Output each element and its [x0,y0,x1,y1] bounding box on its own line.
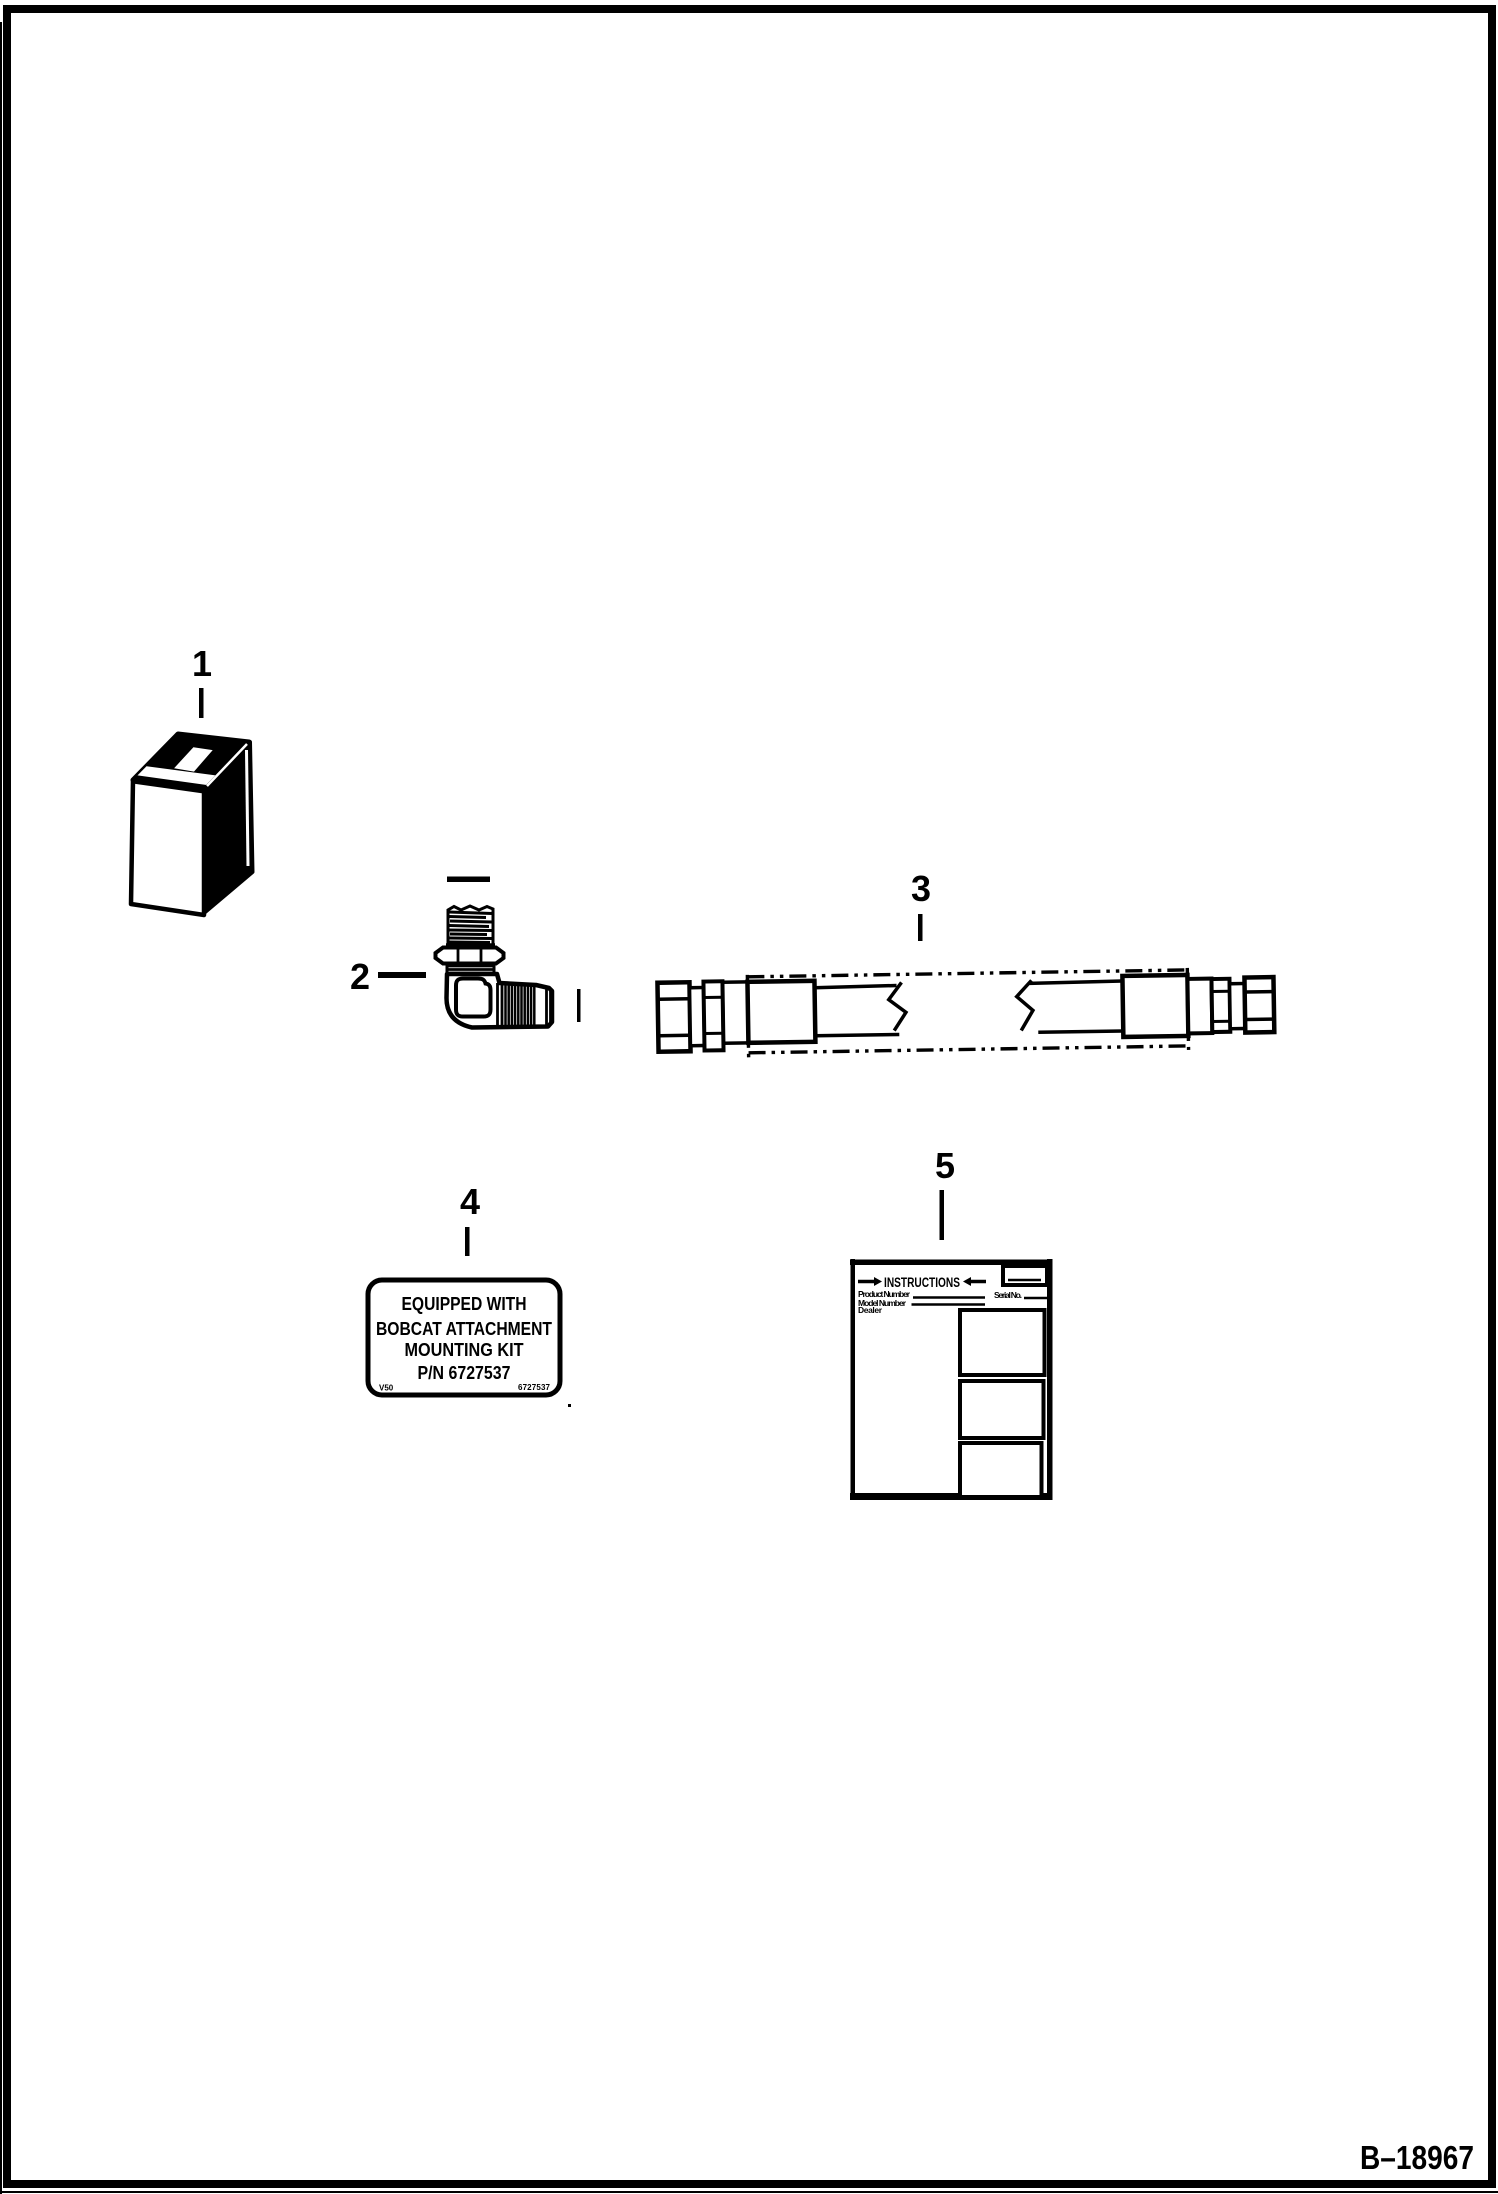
svg-text:Serial No.: Serial No. [994,1290,1022,1300]
svg-text:EQUIPPED WITH: EQUIPPED WITH [402,1294,527,1314]
svg-text:1: 1 [192,643,212,684]
svg-text:5: 5 [935,1145,955,1186]
svg-text:B–18967: B–18967 [1360,2139,1474,2176]
svg-text:BOBCAT ATTACHMENT: BOBCAT ATTACHMENT [376,1319,552,1339]
svg-text:2: 2 [350,956,370,997]
svg-text:MOUNTING KIT: MOUNTING KIT [405,1340,524,1360]
svg-text:6727537: 6727537 [518,1383,551,1392]
svg-text:Dealer: Dealer [858,1305,883,1315]
svg-text:4: 4 [460,1181,480,1222]
svg-text:INSTRUCTIONS: INSTRUCTIONS [884,1275,960,1290]
svg-text:V50: V50 [379,1384,394,1393]
svg-text:3: 3 [911,868,931,909]
svg-text:P/N 6727537: P/N 6727537 [418,1363,511,1383]
